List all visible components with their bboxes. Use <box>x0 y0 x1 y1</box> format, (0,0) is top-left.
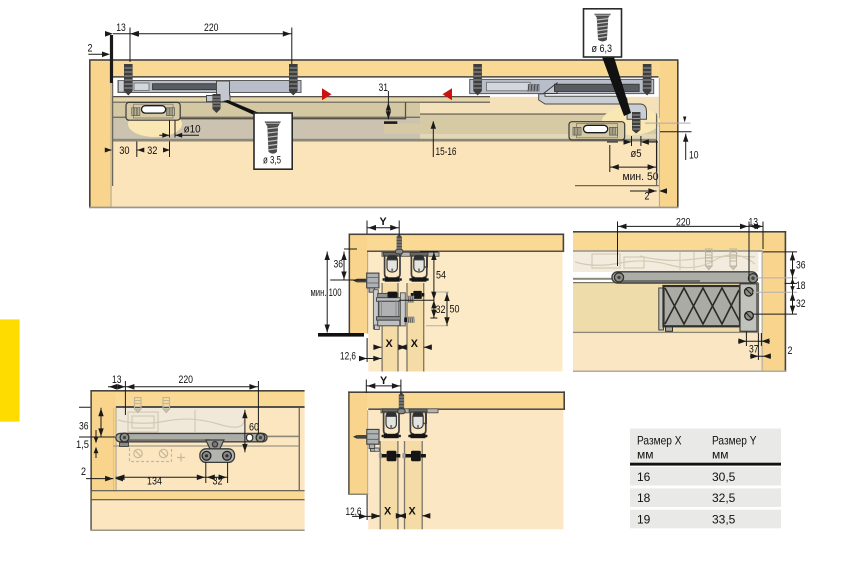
svg-text:54: 54 <box>436 270 446 282</box>
svg-text:ø10: ø10 <box>184 124 201 136</box>
svg-text:13: 13 <box>116 22 126 34</box>
svg-text:220: 220 <box>179 374 194 386</box>
svg-text:31: 31 <box>379 82 389 94</box>
svg-text:16: 16 <box>637 470 651 484</box>
svg-text:18: 18 <box>637 491 651 505</box>
svg-text:мм: мм <box>637 448 654 462</box>
svg-text:50: 50 <box>450 304 460 316</box>
svg-text:ø5: ø5 <box>631 148 642 160</box>
svg-text:12,6: 12,6 <box>346 506 362 518</box>
svg-text:X: X <box>411 338 419 350</box>
svg-text:15-16: 15-16 <box>436 146 457 158</box>
svg-text:ø 3,5: ø 3,5 <box>263 155 281 167</box>
svg-text:19: 19 <box>637 512 651 526</box>
svg-text:13: 13 <box>749 217 759 229</box>
svg-text:2: 2 <box>81 466 86 478</box>
svg-text:36: 36 <box>334 259 344 271</box>
svg-text:32: 32 <box>213 475 223 487</box>
svg-text:2: 2 <box>645 191 650 203</box>
svg-text:10: 10 <box>689 149 699 161</box>
svg-text:ø 6,3: ø 6,3 <box>592 43 613 55</box>
svg-text:32: 32 <box>147 145 157 157</box>
svg-text:134: 134 <box>147 475 162 487</box>
svg-text:Размер Y: Размер Y <box>712 434 757 448</box>
svg-text:Y: Y <box>380 375 388 387</box>
svg-text:2: 2 <box>788 345 793 357</box>
svg-text:32: 32 <box>436 304 446 316</box>
svg-text:220: 220 <box>676 217 691 229</box>
svg-text:60: 60 <box>249 422 259 434</box>
svg-text:мм: мм <box>712 448 729 462</box>
svg-text:Y: Y <box>380 216 388 228</box>
svg-text:30: 30 <box>119 145 129 157</box>
svg-text:X: X <box>386 338 394 350</box>
svg-text:36: 36 <box>79 421 89 433</box>
svg-text:36: 36 <box>796 260 806 272</box>
svg-text:мин. 100: мин. 100 <box>311 287 342 299</box>
svg-text:37: 37 <box>749 344 759 356</box>
svg-text:32,5: 32,5 <box>712 491 736 505</box>
svg-text:2: 2 <box>88 43 93 55</box>
svg-text:33,5: 33,5 <box>712 512 736 526</box>
svg-text:Размер X: Размер X <box>637 434 682 448</box>
svg-text:32: 32 <box>796 298 806 310</box>
svg-text:13: 13 <box>112 374 122 386</box>
svg-text:X: X <box>409 506 417 518</box>
svg-text:220: 220 <box>204 22 219 34</box>
svg-text:X: X <box>384 506 392 518</box>
svg-text:18: 18 <box>796 280 806 292</box>
svg-text:30,5: 30,5 <box>712 470 736 484</box>
svg-text:1,5: 1,5 <box>76 439 89 451</box>
svg-text:12,6: 12,6 <box>340 350 356 362</box>
svg-text:мин. 50: мин. 50 <box>623 171 659 183</box>
